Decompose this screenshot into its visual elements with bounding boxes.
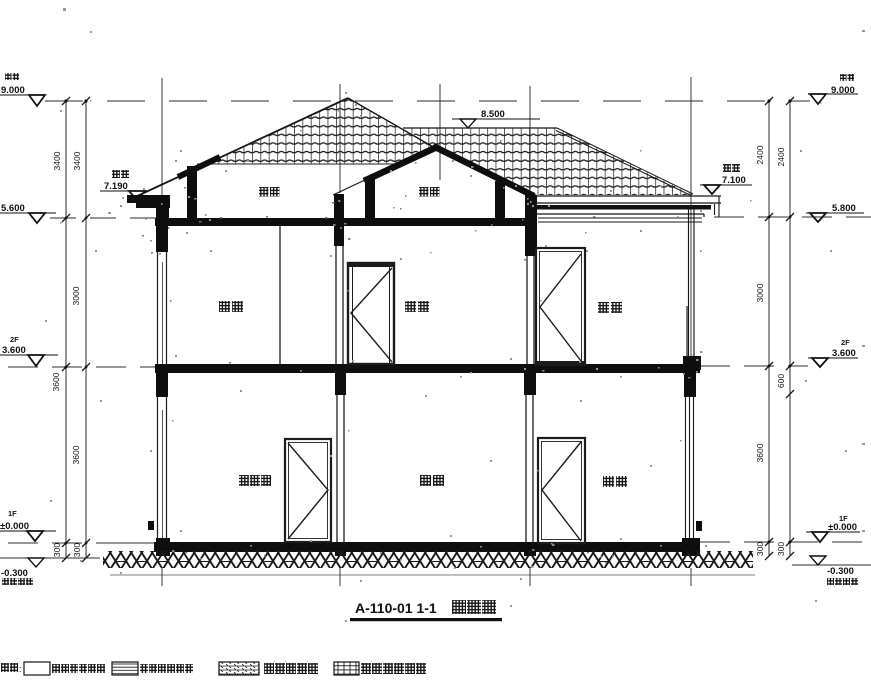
svg-text:9.000: 9.000 (1, 85, 25, 96)
svg-text:300: 300 (52, 543, 62, 557)
svg-text:±0.000: ±0.000 (0, 521, 29, 532)
svg-text:3600: 3600 (51, 372, 61, 391)
svg-text:-0.300: -0.300 (1, 568, 28, 579)
svg-text:2400: 2400 (776, 147, 786, 166)
svg-text:1F: 1F (839, 514, 848, 523)
svg-text:8.500: 8.500 (481, 109, 505, 120)
svg-text::: : (19, 664, 22, 674)
svg-text:3000: 3000 (71, 286, 81, 305)
svg-text:7.100: 7.100 (722, 175, 746, 186)
svg-text:3000: 3000 (755, 283, 765, 302)
svg-text:300: 300 (776, 542, 786, 556)
svg-text:7.190: 7.190 (104, 181, 128, 192)
svg-text:2400: 2400 (755, 145, 765, 164)
svg-text:3600: 3600 (71, 445, 81, 464)
svg-text:3.600: 3.600 (832, 348, 856, 359)
svg-text:300: 300 (72, 543, 82, 557)
svg-text:3600: 3600 (755, 443, 765, 462)
svg-text:600: 600 (776, 374, 786, 388)
svg-text:3400: 3400 (72, 151, 82, 170)
svg-text:1F: 1F (8, 509, 17, 518)
svg-text:±0.000: ±0.000 (828, 522, 857, 533)
svg-text:5.800: 5.800 (832, 203, 856, 214)
svg-text:5.600: 5.600 (1, 203, 25, 214)
svg-text:3400: 3400 (52, 151, 62, 170)
svg-text:-0.300: -0.300 (827, 566, 854, 577)
svg-text:300: 300 (755, 542, 765, 556)
svg-text:A-110-01 1-1: A-110-01 1-1 (355, 600, 437, 616)
svg-text:9.000: 9.000 (831, 85, 855, 96)
svg-text:3.600: 3.600 (2, 345, 26, 356)
svg-text:2F: 2F (10, 335, 19, 344)
svg-text:2F: 2F (841, 338, 850, 347)
